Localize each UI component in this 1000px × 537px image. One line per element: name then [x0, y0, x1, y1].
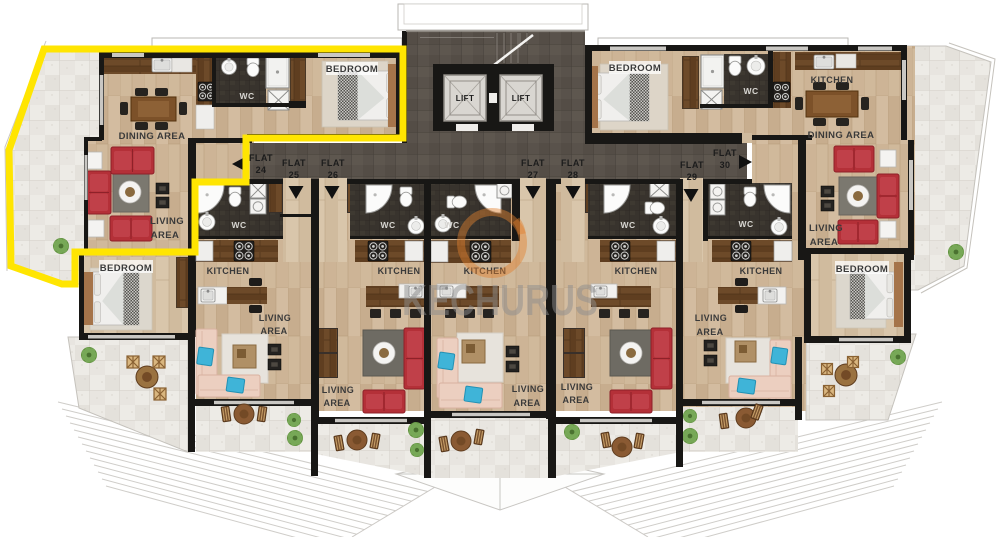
svg-text:29: 29	[687, 172, 698, 182]
svg-text:FLAT: FLAT	[561, 158, 585, 168]
svg-text:AREA: AREA	[323, 398, 350, 408]
svg-text:25: 25	[289, 170, 300, 180]
svg-text:KITCHEN: KITCHEN	[811, 75, 854, 85]
svg-text:FLAT: FLAT	[249, 153, 273, 163]
svg-text:DINING AREA: DINING AREA	[808, 130, 875, 141]
svg-text:LIVING: LIVING	[259, 313, 291, 323]
svg-text:KITCHEN: KITCHEN	[740, 266, 783, 276]
svg-text:LIVING: LIVING	[809, 223, 843, 234]
svg-text:24: 24	[256, 165, 267, 175]
svg-text:WC: WC	[445, 220, 460, 230]
svg-text:AREA: AREA	[562, 395, 589, 405]
svg-text:LIVING: LIVING	[322, 385, 354, 395]
svg-text:LIVING: LIVING	[512, 384, 544, 394]
svg-text:WC: WC	[232, 220, 247, 230]
svg-text:26: 26	[328, 170, 339, 180]
svg-text:LIVING: LIVING	[150, 216, 184, 227]
svg-text:DINING AREA: DINING AREA	[119, 131, 186, 142]
svg-text:KECHURUS: KECHURUS	[402, 276, 598, 325]
svg-text:WC: WC	[744, 86, 759, 96]
svg-text:LIFT: LIFT	[456, 94, 474, 103]
svg-text:BEDROOM: BEDROOM	[836, 264, 888, 275]
svg-text:LIVING: LIVING	[561, 382, 593, 392]
svg-text:FLAT: FLAT	[282, 158, 306, 168]
svg-text:BEDROOM: BEDROOM	[326, 64, 378, 75]
svg-text:FLAT: FLAT	[713, 148, 737, 158]
svg-text:KITCHEN: KITCHEN	[207, 266, 250, 276]
svg-text:BEDROOM: BEDROOM	[100, 263, 152, 274]
svg-text:28: 28	[568, 170, 579, 180]
svg-text:FLAT: FLAT	[521, 158, 545, 168]
svg-text:AREA: AREA	[513, 398, 540, 408]
svg-text:AREA: AREA	[260, 326, 287, 336]
svg-text:FLAT: FLAT	[321, 158, 345, 168]
svg-text:FLAT: FLAT	[680, 160, 704, 170]
svg-text:LIVING: LIVING	[695, 313, 727, 323]
svg-text:WC: WC	[240, 91, 255, 101]
svg-text:AREA: AREA	[151, 230, 180, 241]
svg-text:WC: WC	[381, 220, 396, 230]
svg-text:30: 30	[720, 160, 731, 170]
svg-text:WC: WC	[621, 220, 636, 230]
svg-text:AREA: AREA	[696, 327, 723, 337]
svg-text:KITCHEN: KITCHEN	[615, 266, 658, 276]
svg-text:WC: WC	[739, 219, 754, 229]
svg-text:LIFT: LIFT	[512, 94, 530, 103]
svg-text:AREA: AREA	[810, 237, 839, 248]
svg-text:KITCHEN: KITCHEN	[378, 266, 421, 276]
svg-text:BEDROOM: BEDROOM	[609, 63, 661, 74]
svg-text:27: 27	[528, 170, 539, 180]
